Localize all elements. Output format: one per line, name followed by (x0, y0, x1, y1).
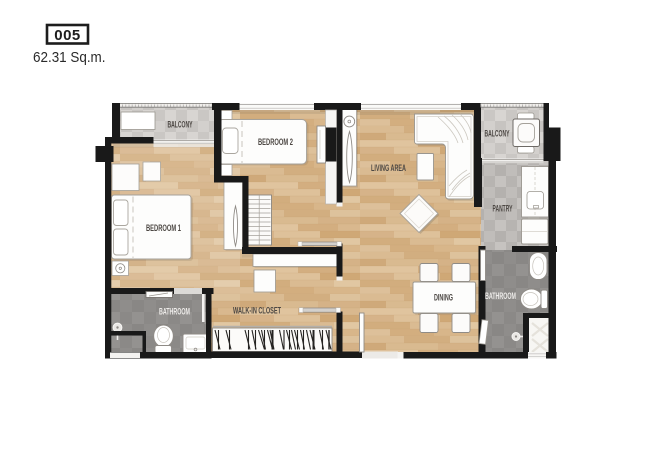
svg-text:BALCONY: BALCONY (168, 120, 193, 130)
svg-text:PANTRY: PANTRY (493, 204, 513, 214)
svg-text:005: 005 (54, 27, 81, 44)
svg-text:DINING: DINING (434, 293, 453, 303)
svg-text:WALK-IN CLOSET: WALK-IN CLOSET (233, 306, 281, 316)
svg-text:BEDROOM 1: BEDROOM 1 (146, 223, 181, 233)
svg-text:BALCONY: BALCONY (485, 129, 510, 139)
svg-text:BATHROOM: BATHROOM (485, 291, 516, 301)
svg-text:LIVING AREA: LIVING AREA (371, 163, 406, 173)
svg-text:BATHROOM: BATHROOM (159, 307, 190, 317)
svg-text:BEDROOM 2: BEDROOM 2 (258, 137, 293, 147)
svg-text:62.31 Sq.m.: 62.31 Sq.m. (33, 50, 106, 66)
